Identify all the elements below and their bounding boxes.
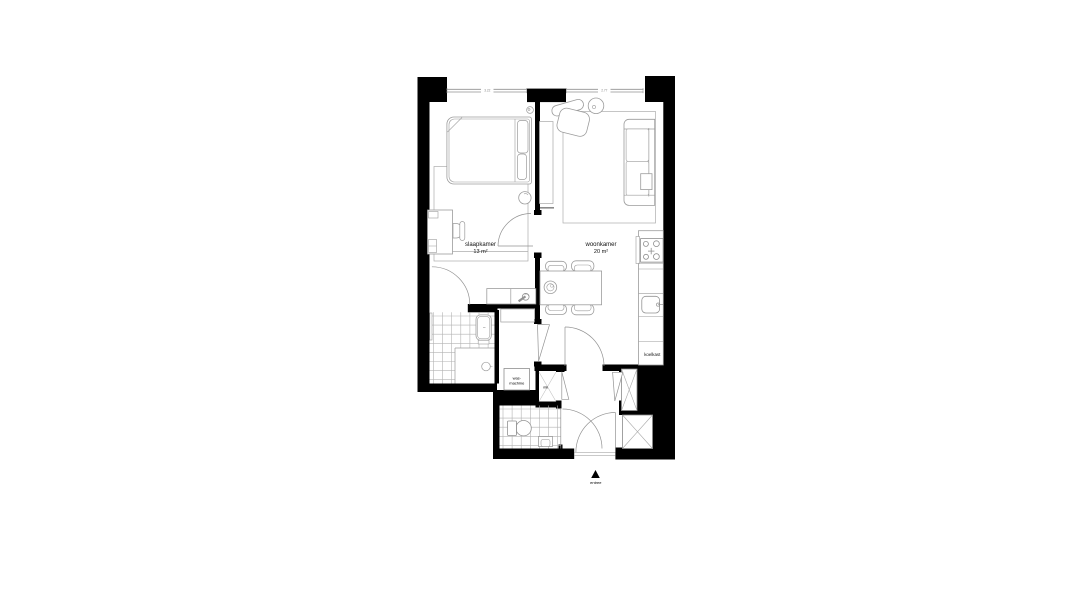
- svg-text:entree: entree: [590, 480, 602, 485]
- svg-text:3.22: 3.22: [484, 88, 490, 92]
- svg-text:mk: mk: [543, 386, 548, 390]
- svg-text:woonkamer: woonkamer: [584, 242, 616, 248]
- svg-text:13 m²: 13 m²: [473, 249, 487, 255]
- svg-text:koelkast: koelkast: [644, 352, 661, 357]
- svg-text:machine: machine: [509, 380, 525, 385]
- svg-text:slaapkamer: slaapkamer: [465, 242, 496, 248]
- svg-text:20 m²: 20 m²: [594, 249, 608, 255]
- svg-text:2.77: 2.77: [601, 88, 607, 92]
